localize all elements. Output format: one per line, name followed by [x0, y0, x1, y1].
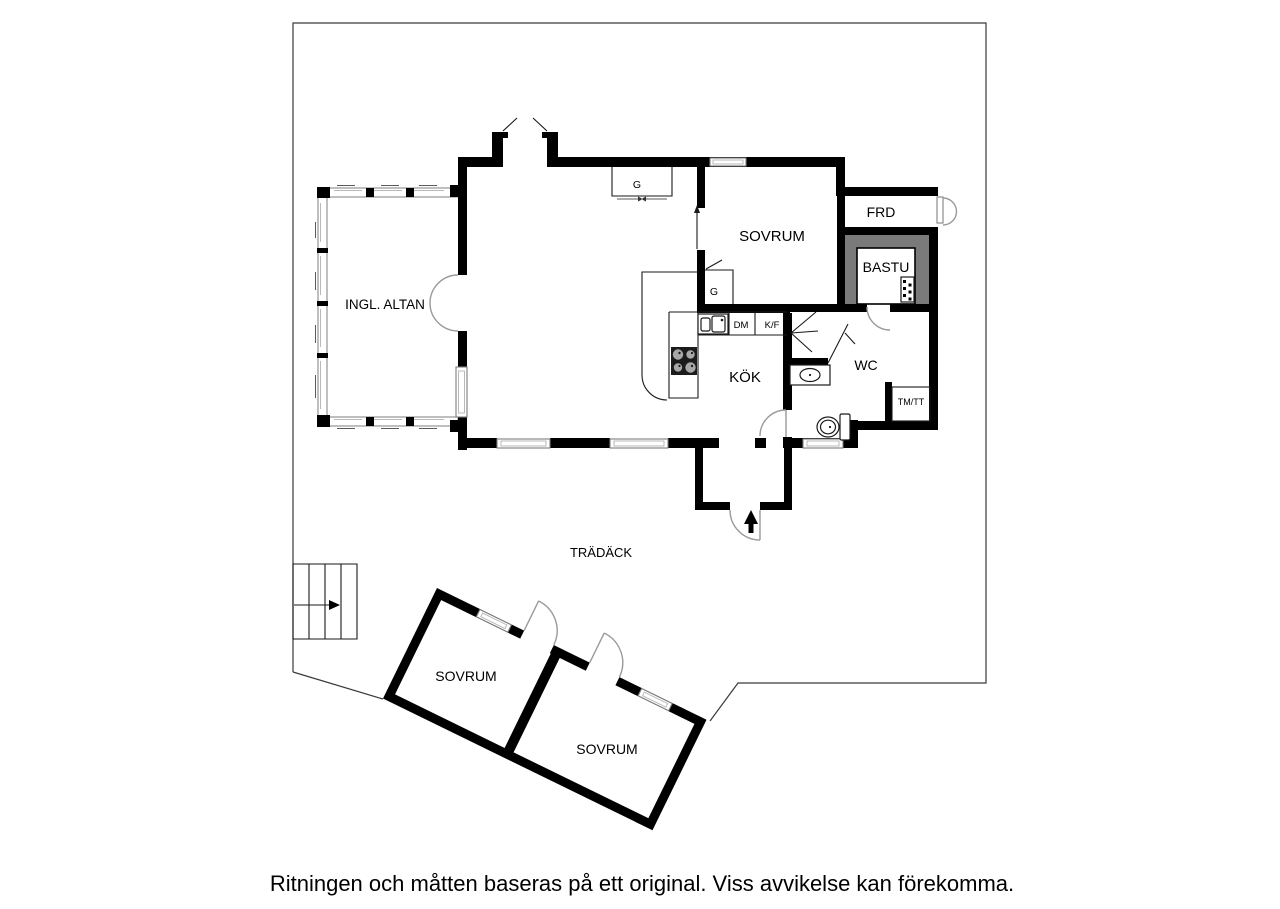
burner-dot-3: [678, 365, 680, 367]
room-label-wc: WC: [854, 357, 877, 373]
toilet-tank: [840, 414, 850, 440]
property-boundary-line: [293, 23, 986, 721]
guest-house-walls: [383, 588, 707, 830]
hall-opening-fan-lines: [791, 312, 818, 352]
floor-plan-canvas: INGL. ALTAN: [0, 0, 1280, 909]
appliance-label-kf: K/F: [765, 320, 780, 331]
stairs-arrow-icon: [329, 600, 340, 610]
sauna-heater-icon: [901, 277, 914, 302]
window-bedroom-top: [710, 158, 746, 166]
entrance: [730, 510, 760, 540]
kitchen-sink-icon: [698, 314, 728, 334]
storage-room: FRD: [867, 197, 957, 225]
toilet-icon: [817, 414, 850, 440]
stairs-treads: [293, 564, 357, 639]
sink-basin-right: [712, 316, 725, 332]
closet-kitchen-door-line: [706, 260, 722, 269]
appliance-label-dm: DM: [734, 320, 749, 331]
porch-glazing-top: [318, 188, 458, 197]
guest-window-left: [476, 610, 511, 633]
main-house: G G: [430, 118, 956, 540]
sauna: BASTU: [845, 235, 929, 330]
guest-window-right: [638, 689, 672, 711]
burner-dot-4: [691, 365, 693, 367]
room-label-sovrum-main: SOVRUM: [739, 228, 805, 245]
laundry-closet: TM/TT: [892, 387, 930, 421]
appliance-label-tmtt: TM/TT: [898, 397, 925, 407]
wc-sink-dot: [809, 374, 811, 376]
wc-door-leaf-line: [828, 324, 855, 363]
room-label-kok: KÖK: [729, 368, 761, 386]
sink-faucet-dot: [721, 319, 724, 322]
sink-basin-left: [701, 318, 710, 331]
burner-2: [686, 350, 694, 358]
window-south-2: [610, 439, 668, 448]
guest-house: [383, 558, 721, 830]
guest-door-arc-left: [524, 601, 568, 645]
area-label-tradack: TRÄDÄCK: [570, 545, 632, 560]
floor-plan-page: INGL. ALTAN: [0, 0, 1280, 909]
room-label-bastu: BASTU: [863, 259, 910, 275]
porch-glazing-left: [318, 197, 327, 417]
closet-kitchen: G: [705, 260, 733, 304]
window-west: [456, 367, 467, 417]
stairs: [293, 564, 357, 639]
closet-hall-outline: [612, 167, 672, 196]
wc-sink-icon: [790, 365, 830, 385]
room-label-sovrum-guest-right: SOVRUM: [576, 741, 637, 757]
porch-glazing-bottom: [318, 417, 458, 426]
window-south-3: [803, 439, 843, 448]
kitchen-hall-door-arc: [760, 410, 786, 437]
property-boundary: [293, 23, 986, 721]
fireplace: [503, 118, 547, 131]
entrance-door-arc: [730, 510, 760, 540]
entrance-arrow-icon: [744, 510, 758, 533]
porch-double-door-arcs: [430, 275, 458, 331]
burner-dot-1: [678, 352, 680, 354]
frd-door-leaf: [937, 197, 943, 223]
closet-hall: G: [612, 167, 672, 202]
sauna-door-arc: [867, 307, 890, 330]
bedroom-door: [694, 205, 700, 249]
toilet-seat: [821, 420, 836, 434]
burner-4: [685, 362, 695, 372]
property-boundary-line-left: [293, 672, 383, 699]
room-label-frd: FRD: [867, 204, 896, 220]
burner-1: [673, 349, 683, 359]
sauna-heater-box: [901, 277, 914, 302]
room-label-sovrum-guest-left: SOVRUM: [435, 668, 496, 684]
window-south-1: [497, 439, 550, 448]
stove-icon: [671, 347, 697, 375]
frd-door-arc: [943, 198, 956, 225]
caption-text: Ritningen och måtten baseras på ett orig…: [270, 871, 1014, 896]
burner-3: [674, 363, 682, 371]
guest-door-arc-right: [590, 633, 634, 677]
closet-hall-slider-arrows: [638, 197, 646, 202]
closet-kitchen-label: G: [710, 286, 718, 298]
room-label-ingl-altan: INGL. ALTAN: [345, 297, 425, 312]
closet-hall-label: G: [633, 179, 641, 191]
toilet-dot: [829, 426, 831, 428]
fireplace-hearth-lines: [503, 118, 547, 131]
glazed-porch: INGL. ALTAN: [316, 185, 466, 432]
burner-dot-2: [691, 352, 693, 354]
